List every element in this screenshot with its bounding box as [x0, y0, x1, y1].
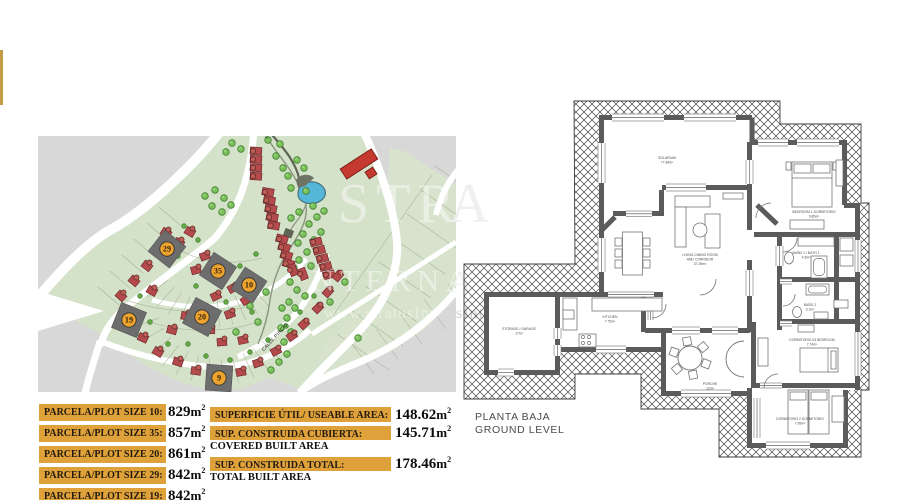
svg-text:www.stratusInt: www.stratusInt: [324, 305, 435, 322]
svg-text:35: 35: [214, 267, 222, 276]
svg-text:LIVING DINING ROOM: LIVING DINING ROOM: [682, 253, 718, 257]
svg-text:BEDROOM 1 DORMITORIO: BEDROOM 1 DORMITORIO: [792, 210, 836, 214]
svg-text:BAÑO 1 / BATH 1: BAÑO 1 / BATH 1: [793, 250, 820, 255]
svg-text:7.74m²: 7.74m²: [807, 342, 818, 346]
svg-text:3.1m²: 3.1m²: [806, 307, 816, 311]
svg-text:KITCHEN: KITCHEN: [603, 315, 618, 319]
svg-text:DORMITORIO 03 BEDROOM: DORMITORIO 03 BEDROOM: [789, 338, 834, 342]
svg-text:37.39m²: 37.39m²: [694, 262, 707, 266]
svg-text:7.75m²: 7.75m²: [605, 319, 616, 323]
svg-text:SOLARIUM: SOLARIUM: [658, 156, 676, 160]
svg-text:A: A: [449, 173, 490, 235]
svg-text:7.95m²: 7.95m²: [795, 421, 806, 425]
svg-text:BAÑO 2: BAÑO 2: [804, 302, 817, 307]
svg-text:12m²: 12m²: [706, 386, 715, 390]
svg-text:29: 29: [163, 245, 171, 254]
svg-text:17m²: 17m²: [515, 331, 524, 335]
svg-text:STORAGE / GARAGE: STORAGE / GARAGE: [502, 327, 537, 331]
svg-text:9: 9: [217, 374, 221, 383]
svg-text:PORCHE: PORCHE: [703, 382, 718, 386]
svg-text:77.84m²: 77.84m²: [661, 160, 674, 164]
svg-text:19: 19: [125, 316, 133, 325]
svg-text:4.5m²: 4.5m²: [802, 255, 812, 259]
svg-text:20: 20: [198, 313, 206, 322]
svg-text:10: 10: [245, 281, 253, 290]
svg-text:9.85m²: 9.85m²: [809, 214, 820, 218]
svg-text:DORMITORIO 2 DORMITORIO: DORMITORIO 2 DORMITORIO: [776, 417, 824, 421]
svg-text:AND CORRIDOR: AND CORRIDOR: [687, 257, 714, 261]
